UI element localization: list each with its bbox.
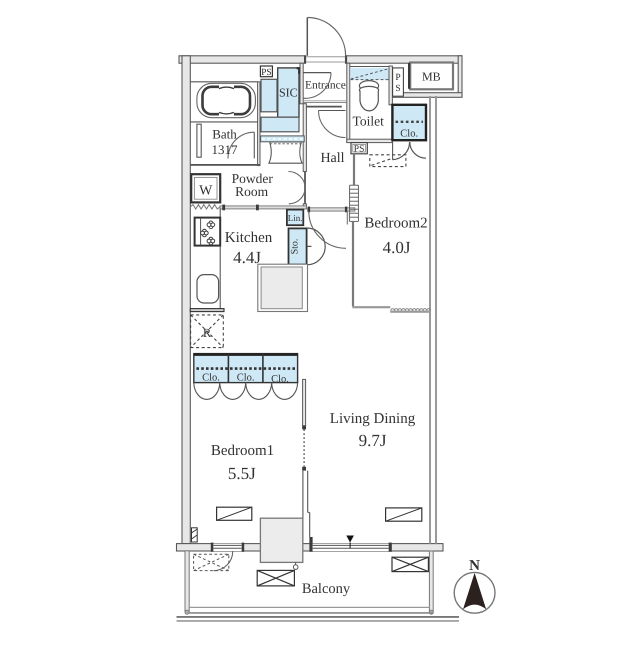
svg-text:Bath: Bath [212,127,237,142]
svg-text:N: N [469,558,480,574]
svg-text:Lin.: Lin. [288,213,303,223]
svg-text:Bedroom1: Bedroom1 [211,443,274,459]
svg-text:Toilet: Toilet [353,114,385,129]
svg-text:1317: 1317 [212,142,239,157]
svg-text:Room: Room [235,184,269,199]
svg-text:Sto.: Sto. [290,239,301,255]
svg-text:4.4J: 4.4J [233,248,261,267]
svg-text:5.5J: 5.5J [228,464,256,483]
svg-text:S: S [395,84,400,94]
svg-text:R: R [203,326,212,340]
svg-text:4.0J: 4.0J [383,238,411,257]
svg-text:Entrance: Entrance [305,79,346,91]
svg-text:Living Dining: Living Dining [330,411,416,427]
svg-text:9.7J: 9.7J [359,431,387,450]
svg-text:Kitchen: Kitchen [225,230,273,246]
svg-text:Clo.: Clo. [237,373,255,384]
svg-text:MB: MB [422,69,441,83]
svg-text:PS: PS [261,68,272,78]
svg-text:Bedroom2: Bedroom2 [364,216,427,232]
svg-text:Clo.: Clo. [202,373,220,384]
svg-text:P: P [395,73,400,83]
svg-text:PS: PS [354,144,365,154]
svg-text:Balcony: Balcony [302,581,351,597]
svg-text:Clo.: Clo. [400,129,418,140]
svg-text:Clo.: Clo. [271,374,289,385]
svg-text:W: W [199,183,213,198]
svg-text:Hall: Hall [320,151,344,166]
svg-text:SIC: SIC [279,86,298,100]
